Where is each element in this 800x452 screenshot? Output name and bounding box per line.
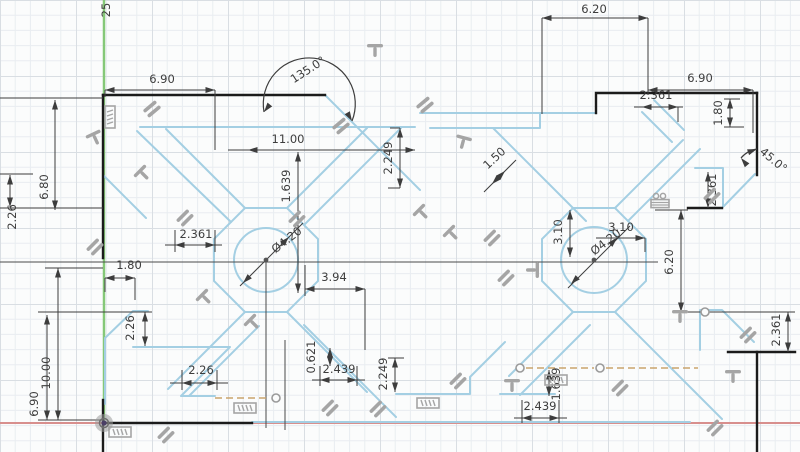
left-circle-center-point[interactable] (264, 258, 269, 263)
dimension-label[interactable]: 2.361 (769, 314, 783, 347)
dimension-label[interactable]: 2.249 (376, 358, 390, 391)
dimension-label[interactable]: 2.361 (180, 227, 213, 241)
dimension-label[interactable]: 2.361 (640, 88, 673, 102)
sketch-point[interactable] (272, 394, 280, 402)
right-circle-center-point[interactable] (592, 258, 597, 263)
sketch-point[interactable] (596, 364, 604, 372)
dimension-label[interactable]: 10.00 (39, 357, 53, 390)
origin-point-icon (101, 420, 106, 425)
dimension-label[interactable]: 2.439 (323, 362, 356, 376)
cad-canvas[interactable]: 6.206.9011.002.3611.803.942.262.4392.439… (0, 0, 800, 452)
dimension-label[interactable]: 1.80 (711, 100, 725, 126)
sketch-origin[interactable] (95, 414, 113, 432)
dimension-label[interactable]: 1.639 (279, 170, 293, 203)
dimension-label[interactable]: 6.90 (27, 391, 41, 417)
dimension-25[interactable]: 25 (99, 3, 113, 18)
dimension-label[interactable]: 2.26 (188, 363, 214, 377)
dimension-label[interactable]: 1.80 (116, 258, 142, 272)
dimension-label[interactable]: 6.20 (662, 249, 676, 275)
dimension-label[interactable]: 2.249 (381, 142, 395, 175)
sketch-scene[interactable]: 6.206.9011.002.3611.803.942.262.4392.439… (0, 0, 800, 452)
grid-background (0, 0, 800, 452)
sketch-point[interactable] (701, 308, 709, 316)
dimension-1.639[interactable]: 1.639 (546, 368, 563, 401)
dimension-label[interactable]: 0.621 (304, 341, 318, 374)
dimension-label[interactable]: 3.94 (321, 270, 347, 284)
dimension-2.361[interactable]: 2.361 (769, 312, 791, 352)
dimension-label[interactable]: 6.90 (149, 72, 175, 86)
dimension-label[interactable]: 3.10 (551, 219, 565, 245)
dimension-label[interactable]: 2.26 (5, 204, 19, 230)
sketch-point[interactable] (516, 364, 524, 372)
dimension-label[interactable]: 6.20 (581, 2, 607, 16)
dimension-label[interactable]: 6.90 (687, 71, 713, 85)
dimension-label[interactable]: 11.00 (272, 132, 305, 146)
dimension-label[interactable]: 6.80 (37, 174, 51, 200)
dimension-label[interactable]: 2.26 (123, 315, 137, 341)
dimension-label[interactable]: 1.639 (549, 368, 563, 401)
dimension-label[interactable]: 25 (99, 3, 113, 18)
